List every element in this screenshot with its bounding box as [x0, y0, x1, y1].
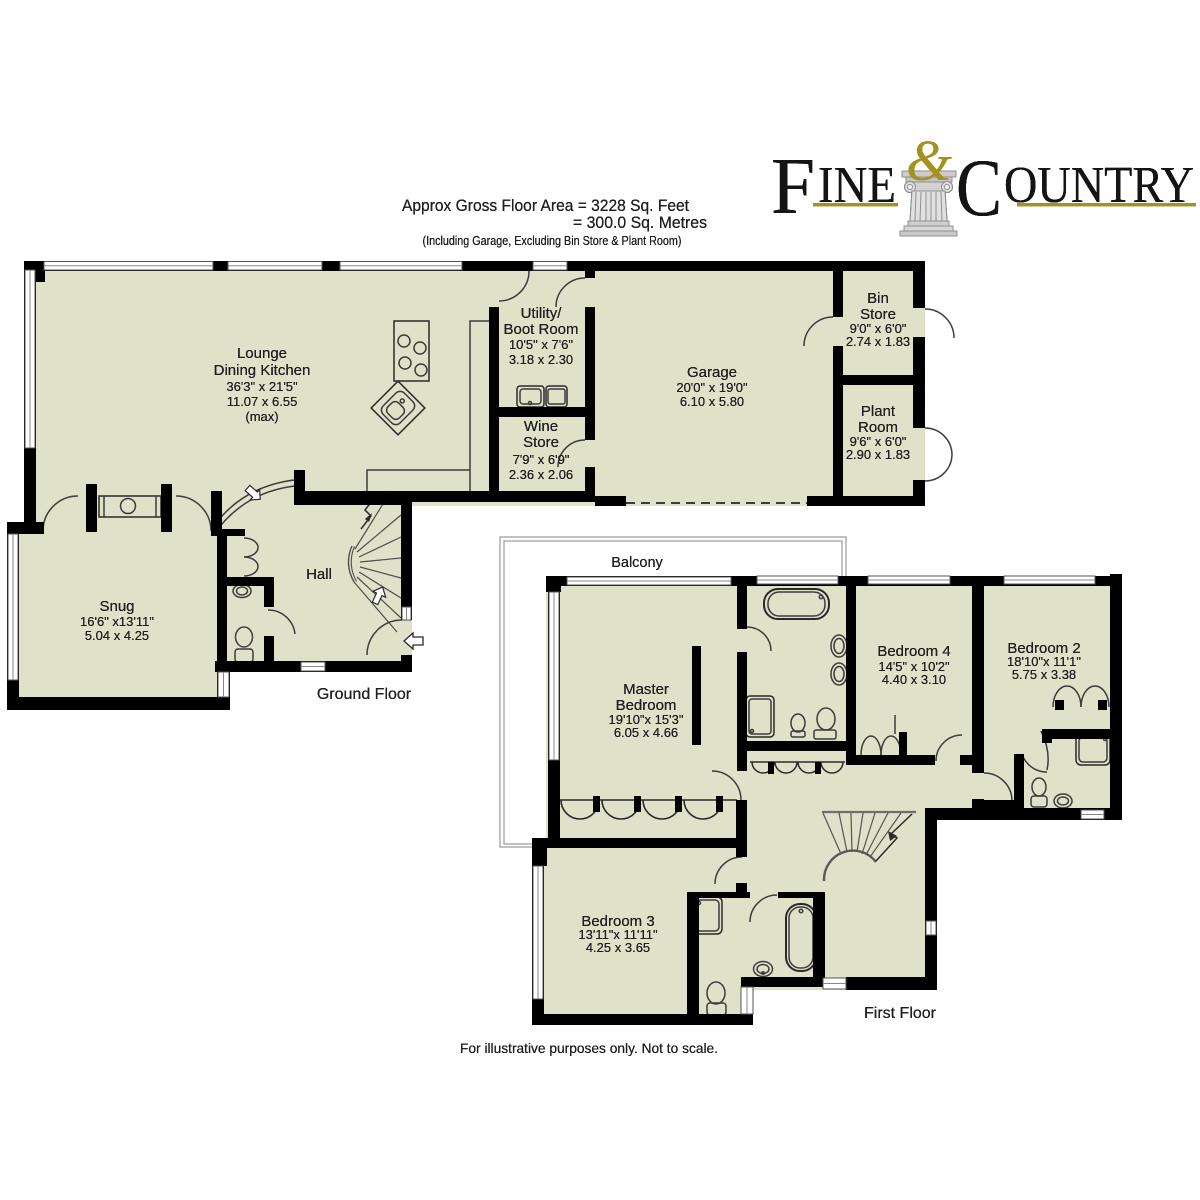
- svg-text:11.07 x 6.55: 11.07 x 6.55: [227, 394, 298, 409]
- svg-text:First Floor: First Floor: [864, 1005, 937, 1022]
- svg-text:Store: Store: [523, 434, 559, 451]
- svg-text:10'5" x 7'6": 10'5" x 7'6": [509, 337, 573, 352]
- svg-text:7'9" x 6'9": 7'9" x 6'9": [513, 452, 570, 467]
- svg-text:Wine: Wine: [524, 418, 558, 435]
- svg-text:C: C: [956, 142, 1002, 233]
- svg-text:For illustrative purposes only: For illustrative purposes only. Not to s…: [460, 1040, 718, 1056]
- svg-text:4.25 x 3.65: 4.25 x 3.65: [586, 940, 650, 955]
- svg-text:36'3" x 21'5": 36'3" x 21'5": [226, 379, 298, 394]
- svg-text:5.75 x 3.38: 5.75 x 3.38: [1012, 667, 1076, 682]
- svg-text:16'6" x13'11": 16'6" x13'11": [80, 614, 154, 629]
- svg-text:5.04 x 4.25: 5.04 x 4.25: [85, 628, 149, 643]
- svg-text:6.10 x 5.80: 6.10 x 5.80: [680, 394, 744, 409]
- svg-text:Utility/: Utility/: [521, 305, 563, 322]
- svg-text:20'0" x 19'0": 20'0" x 19'0": [676, 380, 748, 395]
- svg-text:Plant: Plant: [861, 403, 896, 420]
- svg-text:Garage: Garage: [687, 364, 737, 381]
- svg-text:Snug: Snug: [99, 598, 134, 615]
- svg-text:2.90 x 1.83: 2.90 x 1.83: [846, 447, 910, 462]
- svg-text:Approx Gross Floor Area = 32: Approx Gross Floor Area = 3228 Sq. Feet: [402, 197, 689, 215]
- svg-text:Dining Kitchen: Dining Kitchen: [214, 362, 311, 379]
- svg-text:4.40 x 3.10: 4.40 x 3.10: [882, 672, 946, 687]
- svg-text:F: F: [771, 143, 815, 231]
- svg-text:Bin: Bin: [867, 290, 889, 307]
- svg-text:Boot Room: Boot Room: [503, 321, 578, 338]
- svg-text:&: &: [906, 128, 952, 193]
- svg-text:2.74 x 1.83: 2.74 x 1.83: [846, 334, 910, 349]
- svg-text:Balcony: Balcony: [611, 555, 663, 571]
- svg-text:Master: Master: [623, 681, 669, 698]
- svg-text:6.05 x 4.66: 6.05 x 4.66: [614, 725, 678, 740]
- svg-text:Bedroom 4: Bedroom 4: [877, 643, 950, 660]
- svg-text:= 300.0 Sq. Metres: = 300.0 Sq. Metres: [573, 214, 707, 232]
- svg-text:Hall: Hall: [306, 566, 332, 583]
- svg-text:(Including Garage, Excluding B: (Including Garage, Excluding Bin Store &…: [423, 234, 682, 248]
- svg-text:Ground Floor: Ground Floor: [317, 686, 412, 703]
- svg-text:Lounge: Lounge: [237, 345, 287, 362]
- svg-text:3.18 x 2.30: 3.18 x 2.30: [509, 352, 573, 367]
- svg-text:(max): (max): [245, 409, 278, 424]
- svg-text:2.36 x 2.06: 2.36 x 2.06: [509, 467, 573, 482]
